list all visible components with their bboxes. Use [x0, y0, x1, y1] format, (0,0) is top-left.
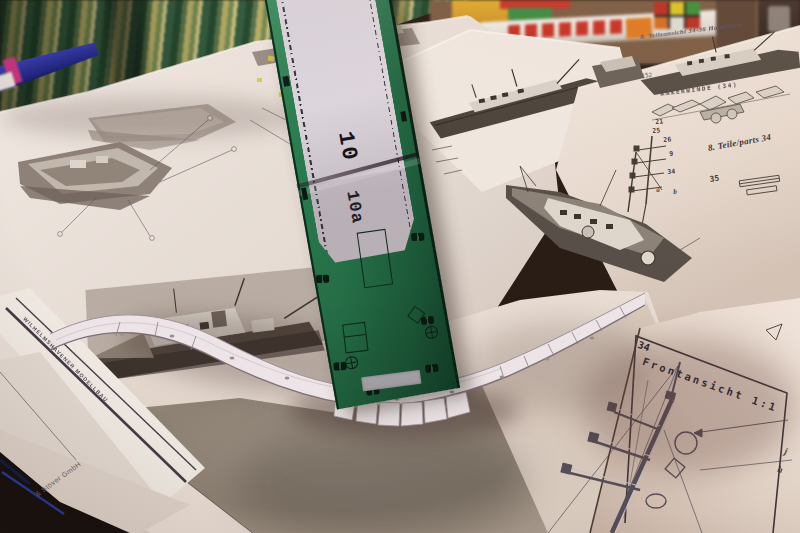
callout-35: 35 [709, 174, 720, 184]
photo-paper-ship-model-scene: 10 10a 8. Teileansicht 34-36 Hauptdeck 1… [0, 0, 800, 533]
callout-21: 21 [655, 117, 663, 126]
callout-25: 25 [652, 126, 660, 135]
callout-34: 34 [667, 167, 675, 176]
callout-b: b [673, 188, 677, 196]
figure-number: 152 [641, 71, 653, 79]
callout-a: a [656, 186, 660, 194]
callout-26: 26 [663, 135, 671, 144]
callout-9: 9 [669, 150, 674, 158]
